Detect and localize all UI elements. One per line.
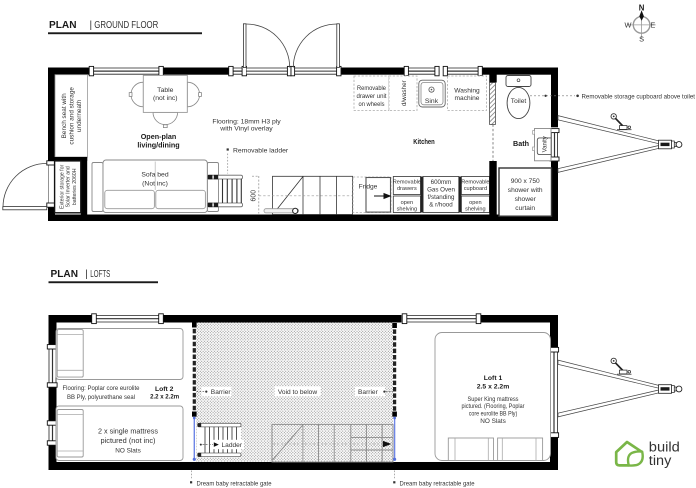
svg-text:core eurolite BB Ply): core eurolite BB Ply) (469, 411, 518, 418)
svg-text:Super King mattress: Super King mattress (468, 396, 520, 403)
svg-text:NO Slats: NO Slats (480, 418, 506, 425)
svg-text:2 x single mattress: 2 x single mattress (98, 428, 159, 435)
svg-text:GROUND FLOOR: GROUND FLOOR (94, 20, 158, 31)
svg-text:shelving: shelving (397, 207, 418, 213)
svg-text:Loft 2: Loft 2 (155, 386, 174, 393)
svg-text:PLAN: PLAN (51, 269, 79, 280)
svg-text:BB Ply, polyurethane seal: BB Ply, polyurethane seal (67, 394, 135, 401)
svg-text:NO Slats: NO Slats (115, 448, 141, 455)
svg-text:Dream baby retractable gate: Dream baby retractable gate (400, 481, 475, 488)
svg-text:Sink: Sink (425, 98, 439, 105)
svg-text:Bath: Bath (513, 139, 529, 148)
svg-text:Table: Table (157, 87, 173, 94)
svg-text:Toilet: Toilet (511, 98, 527, 105)
svg-text:W: W (625, 21, 632, 30)
svg-text:curtain: curtain (515, 205, 535, 212)
svg-text:Gas Oven: Gas Oven (427, 187, 455, 194)
svg-text:Kitchen: Kitchen (413, 137, 435, 146)
svg-text:Ladder: Ladder (222, 442, 243, 449)
svg-text:Loft 1: Loft 1 (484, 375, 503, 382)
svg-text:living/dining: living/dining (137, 141, 179, 150)
svg-text:Flooring: Poplar core eurolite: Flooring: Poplar core eurolite (63, 385, 140, 392)
svg-text:Barrier: Barrier (358, 389, 379, 396)
svg-text:cupboard: cupboard (464, 186, 487, 192)
svg-text:2.5 x 2.2m: 2.5 x 2.2m (477, 384, 510, 391)
svg-text:|: | (90, 20, 93, 31)
svg-text:Sofa bed: Sofa bed (141, 171, 168, 178)
svg-text:shelving: shelving (465, 207, 486, 213)
svg-text:S: S (639, 35, 644, 44)
svg-text:drawers: drawers (397, 186, 417, 192)
svg-text:Barrier: Barrier (211, 389, 232, 396)
svg-text:(Not inc): (Not inc) (142, 180, 168, 187)
svg-text:on wheels: on wheels (359, 101, 386, 108)
svg-text:Vanity: Vanity (542, 136, 548, 152)
svg-text:open: open (469, 200, 481, 206)
svg-text:PLAN: PLAN (49, 20, 77, 31)
svg-text:Removable storage cupboard abo: Removable storage cupboard above toilet (582, 93, 696, 100)
svg-text:f/standing: f/standing (428, 194, 455, 201)
svg-text:Removable: Removable (357, 85, 386, 92)
svg-text:pictured (not inc): pictured (not inc) (101, 438, 156, 445)
svg-text:Washing: Washing (454, 87, 480, 94)
svg-text:E: E (650, 21, 655, 30)
svg-text:600: 600 (250, 190, 257, 202)
svg-text:Void to below: Void to below (278, 389, 317, 396)
svg-text:& r/hood: & r/hood (429, 202, 453, 209)
svg-text:open: open (401, 200, 413, 206)
svg-text:tiny: tiny (649, 453, 672, 469)
svg-text:(not inc): (not inc) (153, 95, 178, 102)
svg-text:pictured. (Flooring, Poplar: pictured. (Flooring, Poplar (462, 403, 526, 410)
svg-text:Removable ladder: Removable ladder (233, 148, 289, 155)
svg-text:2.2 x 2.2m: 2.2 x 2.2m (150, 393, 179, 400)
svg-text:shower with: shower with (508, 187, 543, 194)
svg-text:with Vinyl overlay: with Vinyl overlay (219, 125, 273, 132)
svg-text:LOFTS: LOFTS (90, 269, 110, 280)
svg-text:machine: machine (455, 95, 480, 102)
svg-text:900 x 750: 900 x 750 (511, 178, 540, 185)
svg-text:Removable: Removable (393, 180, 421, 186)
svg-text:d/washer: d/washer (401, 79, 408, 106)
svg-text:Fridge: Fridge (359, 184, 378, 191)
svg-text:drawer unit: drawer unit (357, 93, 387, 100)
svg-text:|: | (85, 269, 88, 280)
svg-text:Removable: Removable (461, 180, 489, 186)
svg-text:Exterior storage forSolar Inve: Exterior storage forSolar Inverter andba… (60, 164, 78, 208)
svg-text:shower: shower (515, 196, 537, 203)
svg-text:N: N (639, 4, 645, 13)
svg-text:Dream baby retractable gate: Dream baby retractable gate (197, 481, 272, 488)
svg-text:600mm: 600mm (431, 179, 452, 186)
